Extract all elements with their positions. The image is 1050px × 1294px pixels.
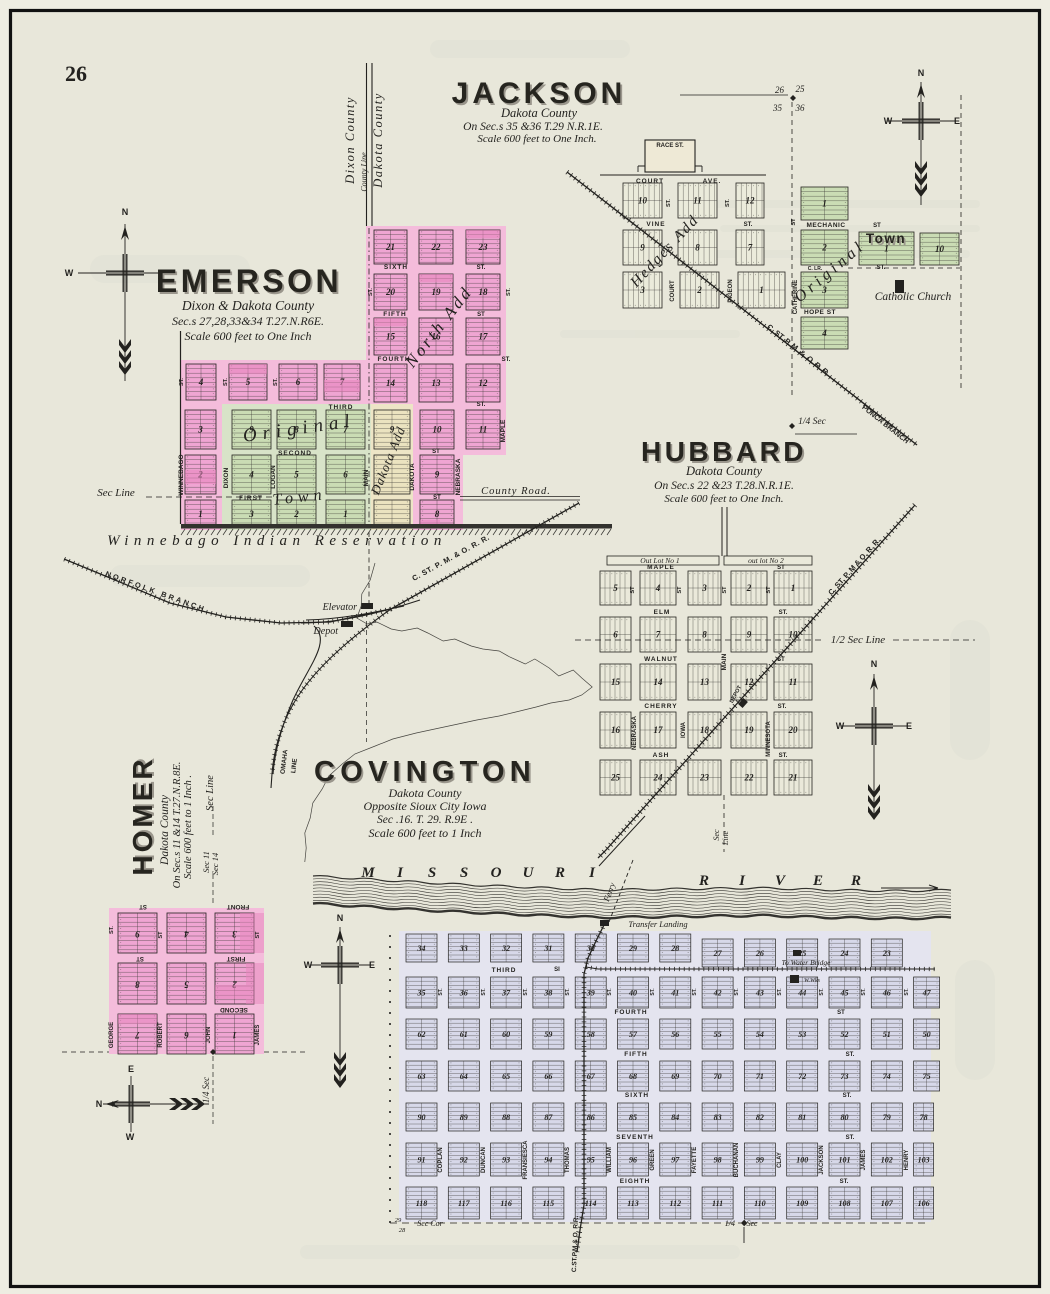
svg-text:45: 45 xyxy=(840,989,849,998)
svg-text:On Sec.s 35 &36 T.29 N.R.1E.: On Sec.s 35 &36 T.29 N.R.1E. xyxy=(463,121,603,133)
svg-text:35: 35 xyxy=(772,103,783,113)
svg-text:2: 2 xyxy=(293,509,299,519)
svg-text:FRANSIESCA: FRANSIESCA xyxy=(523,1140,529,1180)
svg-text:W: W xyxy=(65,268,74,278)
svg-text:14: 14 xyxy=(386,378,396,388)
svg-text:SECOND: SECOND xyxy=(278,450,312,457)
svg-text:8: 8 xyxy=(435,509,440,519)
svg-text:71: 71 xyxy=(756,1072,764,1081)
svg-text:ST: ST xyxy=(791,218,797,226)
svg-text:111: 111 xyxy=(712,1199,723,1208)
svg-text:108: 108 xyxy=(839,1199,851,1208)
svg-text:ST: ST xyxy=(630,586,636,594)
svg-text:6: 6 xyxy=(296,377,301,387)
svg-text:112: 112 xyxy=(670,1199,682,1208)
svg-text:SI: SI xyxy=(554,967,560,973)
svg-text:FIFTH: FIFTH xyxy=(624,1051,647,1058)
svg-text:ST.: ST. xyxy=(666,199,672,207)
svg-text:1: 1 xyxy=(343,509,348,519)
svg-text:ROBERT: ROBERT xyxy=(158,1022,164,1048)
svg-text:70: 70 xyxy=(714,1072,722,1081)
svg-text:5: 5 xyxy=(613,583,618,593)
svg-text:Dixon & Dakota County: Dixon & Dakota County xyxy=(181,298,314,313)
svg-text:86: 86 xyxy=(587,1113,595,1122)
svg-text:26: 26 xyxy=(755,949,764,958)
svg-text:ST: ST xyxy=(255,931,261,939)
svg-text:W: W xyxy=(304,960,313,970)
svg-text:N: N xyxy=(337,913,344,923)
svg-text:27: 27 xyxy=(713,949,723,958)
svg-text:Catholic Church: Catholic Church xyxy=(875,291,952,303)
svg-text:13: 13 xyxy=(432,378,442,388)
svg-text:39: 39 xyxy=(586,989,595,998)
svg-text:MAPLE: MAPLE xyxy=(647,564,675,571)
svg-text:32: 32 xyxy=(501,944,510,953)
svg-text:63: 63 xyxy=(418,1072,426,1081)
svg-text:101: 101 xyxy=(839,1156,851,1165)
svg-text:28: 28 xyxy=(670,944,679,953)
svg-text:1: 1 xyxy=(759,285,764,295)
svg-text:91: 91 xyxy=(418,1156,426,1165)
svg-text:60: 60 xyxy=(502,1030,510,1039)
svg-text:HOMER: HOMER xyxy=(127,756,158,875)
svg-text:ST: ST xyxy=(722,586,728,594)
svg-text:97: 97 xyxy=(671,1156,680,1165)
svg-text:ST.: ST. xyxy=(846,1135,855,1141)
svg-text:102: 102 xyxy=(881,1156,893,1165)
svg-text:Sec Cor: Sec Cor xyxy=(417,1219,443,1228)
svg-text:ST.: ST. xyxy=(734,988,740,996)
svg-text:99: 99 xyxy=(756,1156,764,1165)
svg-text:ST.: ST. xyxy=(692,988,698,996)
svg-text:Line: Line xyxy=(721,830,730,846)
svg-text:N: N xyxy=(96,1099,103,1109)
svg-text:ST.: ST. xyxy=(223,378,229,386)
svg-text:Sec 14: Sec 14 xyxy=(210,852,220,875)
svg-text:12: 12 xyxy=(479,378,489,388)
svg-text:ST.: ST. xyxy=(904,988,910,996)
svg-text:County Road.: County Road. xyxy=(481,486,551,497)
svg-text:1: 1 xyxy=(822,199,827,209)
svg-text:SIXTH: SIXTH xyxy=(625,1092,649,1099)
svg-text:MECHANIC: MECHANIC xyxy=(806,222,845,229)
svg-text:WINNEBAGO: WINNEBAGO xyxy=(178,454,185,495)
svg-text:ST.: ST. xyxy=(565,988,571,996)
svg-text:5: 5 xyxy=(184,980,189,990)
svg-text:COVINGTON: COVINGTON xyxy=(314,756,536,788)
svg-text:116: 116 xyxy=(500,1199,512,1208)
svg-text:JAMES: JAMES xyxy=(255,1025,261,1046)
svg-text:On Sec.s 22 &23 T.28.N.R.1E.: On Sec.s 22 &23 T.28.N.R.1E. xyxy=(654,480,794,492)
svg-text:HUBBARD: HUBBARD xyxy=(641,436,807,467)
svg-text:9: 9 xyxy=(435,470,440,480)
svg-text:106: 106 xyxy=(918,1199,930,1208)
svg-text:ST.: ST. xyxy=(607,988,613,996)
svg-text:ST.: ST. xyxy=(481,988,487,996)
svg-text:WALNUT: WALNUT xyxy=(644,656,678,663)
svg-text:21: 21 xyxy=(788,773,798,783)
svg-text:51: 51 xyxy=(883,1030,891,1039)
svg-text:ST.: ST. xyxy=(877,265,886,271)
svg-text:4: 4 xyxy=(821,328,827,338)
svg-text:23: 23 xyxy=(478,242,489,252)
svg-text:118: 118 xyxy=(416,1199,428,1208)
svg-text:4: 4 xyxy=(184,929,190,939)
svg-text:84: 84 xyxy=(671,1113,679,1122)
svg-text:FAYETTE: FAYETTE xyxy=(692,1147,698,1173)
svg-text:8: 8 xyxy=(702,630,707,640)
svg-text:56: 56 xyxy=(671,1030,679,1039)
svg-text:Dakota County: Dakota County xyxy=(685,464,762,478)
svg-text:Sec.s 27,28,33&34 T.27.N.R6E.: Sec.s 27,28,33&34 T.27.N.R6E. xyxy=(172,314,324,328)
svg-text:GREEN: GREEN xyxy=(650,1149,656,1170)
svg-text:ST.: ST. xyxy=(778,704,787,710)
svg-text:34: 34 xyxy=(417,944,426,953)
svg-text:ST: ST xyxy=(136,955,144,961)
svg-text:24: 24 xyxy=(653,773,664,783)
svg-text:2: 2 xyxy=(821,243,827,253)
svg-text:out lot No 2: out lot No 2 xyxy=(748,556,784,565)
svg-text:23: 23 xyxy=(882,949,891,958)
svg-text:96: 96 xyxy=(629,1156,637,1165)
svg-text:SECOND: SECOND xyxy=(220,1006,248,1013)
svg-text:W.Wks: W.Wks xyxy=(804,978,821,984)
svg-text:MINNESOTA: MINNESOTA xyxy=(766,721,772,757)
svg-text:MAPLE: MAPLE xyxy=(500,419,507,442)
svg-text:Sec Line: Sec Line xyxy=(205,775,216,811)
svg-text:ST.: ST. xyxy=(779,610,788,616)
svg-text:WILLIAM: WILLIAM xyxy=(607,1147,613,1173)
svg-text:On Sec.s 11 &14 T.27.N.R.8E.: On Sec.s 11 &14 T.27.N.R.8E. xyxy=(172,762,183,889)
svg-text:SEVENTH: SEVENTH xyxy=(616,1134,654,1141)
svg-text:Scale 600 feet to One Inch: Scale 600 feet to One Inch xyxy=(185,329,312,343)
svg-text:52: 52 xyxy=(841,1030,849,1039)
svg-text:COURT: COURT xyxy=(670,280,676,302)
svg-text:36: 36 xyxy=(795,103,806,113)
svg-text:9: 9 xyxy=(640,243,645,253)
svg-text:ST.: ST. xyxy=(477,265,486,271)
svg-text:44: 44 xyxy=(797,989,806,998)
svg-text:55: 55 xyxy=(714,1030,722,1039)
svg-text:38: 38 xyxy=(543,989,552,998)
svg-text:115: 115 xyxy=(543,1199,555,1208)
svg-text:DIXON: DIXON xyxy=(223,467,230,488)
svg-text:24: 24 xyxy=(840,949,849,958)
svg-text:90: 90 xyxy=(418,1113,426,1122)
svg-text:FRONT: FRONT xyxy=(227,903,249,910)
svg-text:ST: ST xyxy=(158,931,164,939)
svg-text:W: W xyxy=(126,1132,135,1142)
svg-text:5: 5 xyxy=(246,377,251,387)
svg-text:ST.: ST. xyxy=(477,402,486,408)
svg-text:R: R xyxy=(554,865,565,881)
svg-text:ST: ST xyxy=(677,586,683,594)
svg-text:Sec: Sec xyxy=(746,1219,758,1228)
svg-text:72: 72 xyxy=(798,1072,806,1081)
svg-text:58: 58 xyxy=(587,1030,595,1039)
svg-text:73: 73 xyxy=(841,1072,849,1081)
svg-text:21: 21 xyxy=(385,242,395,252)
svg-text:8: 8 xyxy=(135,980,140,990)
svg-text:4: 4 xyxy=(248,470,254,480)
svg-text:ST.: ST. xyxy=(109,926,115,934)
svg-text:7: 7 xyxy=(748,243,753,253)
svg-text:16: 16 xyxy=(611,725,621,735)
svg-text:FIRST: FIRST xyxy=(227,955,246,962)
svg-text:82: 82 xyxy=(756,1113,764,1122)
svg-text:ST.: ST. xyxy=(744,222,753,228)
svg-text:4: 4 xyxy=(198,377,204,387)
svg-text:N: N xyxy=(871,659,878,669)
svg-text:75: 75 xyxy=(923,1072,931,1081)
svg-text:E: E xyxy=(369,960,375,970)
svg-text:VINE: VINE xyxy=(646,221,665,228)
svg-text:FIRST: FIRST xyxy=(239,495,263,502)
svg-text:40: 40 xyxy=(628,989,637,998)
svg-text:Sec: Sec xyxy=(712,829,721,841)
svg-text:94: 94 xyxy=(544,1156,552,1165)
svg-text:43: 43 xyxy=(755,989,764,998)
svg-text:Scale 600 feet to One Inch.: Scale 600 feet to One Inch. xyxy=(477,133,596,145)
svg-text:Scale 600 feet to One Inch.: Scale 600 feet to One Inch. xyxy=(664,493,783,505)
svg-text:29: 29 xyxy=(395,1217,402,1224)
svg-text:ST: ST xyxy=(139,903,147,909)
svg-text:62: 62 xyxy=(418,1030,426,1039)
svg-text:JOHN: JOHN xyxy=(206,1027,212,1044)
svg-text:N: N xyxy=(122,207,129,217)
svg-text:6: 6 xyxy=(613,630,618,640)
svg-text:57: 57 xyxy=(629,1030,638,1039)
svg-text:3: 3 xyxy=(701,583,707,593)
svg-text:JAMES: JAMES xyxy=(861,1150,867,1171)
svg-text:1: 1 xyxy=(198,509,203,519)
svg-text:ST.: ST. xyxy=(725,199,731,207)
svg-text:42: 42 xyxy=(713,989,722,998)
svg-text:92: 92 xyxy=(460,1156,468,1165)
svg-text:ST.: ST. xyxy=(777,988,783,996)
svg-text:SIXTH: SIXTH xyxy=(384,264,408,271)
svg-text:Transfer Landing: Transfer Landing xyxy=(628,919,687,929)
svg-text:26: 26 xyxy=(65,61,87,86)
svg-text:18: 18 xyxy=(700,725,710,735)
svg-text:110: 110 xyxy=(754,1199,766,1208)
svg-text:DUNCAN: DUNCAN xyxy=(481,1147,487,1173)
svg-text:FOURTH: FOURTH xyxy=(614,1009,647,1016)
svg-text:69: 69 xyxy=(671,1072,679,1081)
svg-text:W: W xyxy=(836,721,845,731)
svg-text:88: 88 xyxy=(502,1113,510,1122)
svg-text:Depot: Depot xyxy=(313,626,339,637)
svg-text:2: 2 xyxy=(696,285,702,295)
svg-text:County Line: County Line xyxy=(360,152,369,192)
svg-text:3: 3 xyxy=(232,929,238,939)
svg-text:JACKSON: JACKSON xyxy=(819,1145,825,1174)
svg-text:CHERRY: CHERRY xyxy=(644,703,677,710)
svg-text:HENRY: HENRY xyxy=(904,1150,910,1171)
svg-text:HOPE ST: HOPE ST xyxy=(804,309,836,316)
svg-text:MAIN: MAIN xyxy=(721,653,728,670)
svg-text:6: 6 xyxy=(184,1030,189,1040)
svg-text:107: 107 xyxy=(881,1199,894,1208)
svg-text:7: 7 xyxy=(656,630,661,640)
svg-text:Dakota County: Dakota County xyxy=(159,794,171,866)
svg-text:47: 47 xyxy=(922,989,932,998)
svg-text:ST.: ST. xyxy=(523,988,529,996)
svg-text:Opposite Sioux City Iowa: Opposite Sioux City Iowa xyxy=(364,799,487,813)
svg-text:46: 46 xyxy=(882,989,891,998)
svg-text:R: R xyxy=(850,873,861,889)
svg-text:Dixon County: Dixon County xyxy=(343,96,357,185)
svg-text:78: 78 xyxy=(920,1113,928,1122)
svg-text:ST.: ST. xyxy=(502,357,511,363)
svg-text:79: 79 xyxy=(883,1113,891,1122)
svg-text:20: 20 xyxy=(788,725,799,735)
svg-text:9: 9 xyxy=(747,630,752,640)
svg-text:ST.: ST. xyxy=(506,288,512,296)
svg-text:10: 10 xyxy=(935,244,945,254)
svg-text:1/2 Sec Line: 1/2 Sec Line xyxy=(831,634,885,646)
svg-text:ST.: ST. xyxy=(840,1179,849,1185)
svg-text:ST: ST xyxy=(873,223,881,229)
svg-text:13: 13 xyxy=(700,677,710,687)
svg-text:103: 103 xyxy=(918,1156,930,1165)
svg-text:26: 26 xyxy=(775,85,785,95)
svg-text:Dakota County: Dakota County xyxy=(500,106,577,120)
svg-text:109: 109 xyxy=(796,1199,808,1208)
svg-text:87: 87 xyxy=(544,1113,553,1122)
svg-text:3: 3 xyxy=(248,509,254,519)
svg-text:22: 22 xyxy=(431,242,442,252)
svg-text:Dakota County: Dakota County xyxy=(388,786,463,800)
svg-text:36: 36 xyxy=(459,989,468,998)
svg-text:93: 93 xyxy=(502,1156,510,1165)
svg-text:19: 19 xyxy=(745,725,755,735)
svg-text:1/4: 1/4 xyxy=(725,1219,735,1228)
svg-text:19: 19 xyxy=(432,287,442,297)
svg-text:29: 29 xyxy=(628,944,637,953)
svg-text:I: I xyxy=(396,865,404,881)
svg-text:R: R xyxy=(698,873,709,889)
svg-text:95: 95 xyxy=(587,1156,595,1165)
svg-text:ST: ST xyxy=(766,586,772,594)
svg-text:Elevator: Elevator xyxy=(322,602,358,613)
svg-text:ST.: ST. xyxy=(650,988,656,996)
svg-text:65: 65 xyxy=(502,1072,510,1081)
svg-text:80: 80 xyxy=(841,1113,849,1122)
svg-text:Winnebago Indian Reservati: Winnebago Indian Reservation xyxy=(107,533,447,549)
svg-text:85: 85 xyxy=(629,1113,637,1122)
svg-text:ELM: ELM xyxy=(654,609,671,616)
svg-text:100: 100 xyxy=(796,1156,808,1165)
svg-text:W: W xyxy=(884,116,893,126)
svg-text:ASH: ASH xyxy=(653,752,670,759)
svg-text:ST.: ST. xyxy=(779,753,788,759)
svg-text:Sec .16. T. 29. R.9E .: Sec .16. T. 29. R.9E . xyxy=(377,814,473,826)
svg-text:15: 15 xyxy=(386,332,396,342)
svg-text:ST.: ST. xyxy=(438,988,444,996)
svg-text:Sec Line: Sec Line xyxy=(97,487,135,499)
svg-text:28: 28 xyxy=(399,1227,406,1234)
svg-text:Scale 600 feet to 1 Inch .: Scale 600 feet to 1 Inch . xyxy=(183,775,194,879)
svg-text:COPLAN: COPLAN xyxy=(438,1147,444,1172)
svg-text:ST.: ST. xyxy=(861,988,867,996)
svg-text:17: 17 xyxy=(479,332,489,342)
svg-text:89: 89 xyxy=(460,1113,468,1122)
svg-text:50: 50 xyxy=(923,1030,931,1039)
svg-text:IOWA: IOWA xyxy=(681,721,687,738)
svg-text:8: 8 xyxy=(695,243,700,253)
svg-text:S: S xyxy=(460,865,468,881)
svg-text:S: S xyxy=(428,865,436,881)
svg-text:ST: ST xyxy=(432,449,440,455)
svg-text:11: 11 xyxy=(479,425,488,435)
svg-text:74: 74 xyxy=(883,1072,891,1081)
svg-text:E: E xyxy=(954,116,960,126)
svg-text:68: 68 xyxy=(629,1072,637,1081)
svg-text:Scale 600 feet to 1 Inch: Scale 600 feet to 1 Inch xyxy=(369,826,482,840)
svg-text:E: E xyxy=(812,873,823,889)
svg-text:3: 3 xyxy=(197,425,203,435)
svg-text:117: 117 xyxy=(458,1199,471,1208)
svg-text:113: 113 xyxy=(627,1199,639,1208)
svg-text:ST: ST xyxy=(477,312,485,318)
svg-text:THOMAS: THOMAS xyxy=(565,1147,571,1173)
svg-text:N: N xyxy=(918,68,925,78)
svg-text:53: 53 xyxy=(798,1030,806,1039)
svg-text:1/4 Sec: 1/4 Sec xyxy=(798,417,826,427)
svg-text:61: 61 xyxy=(460,1030,468,1039)
svg-text:18: 18 xyxy=(479,287,489,297)
svg-text:EIGHTH: EIGHTH xyxy=(620,1178,651,1185)
svg-text:37: 37 xyxy=(501,989,511,998)
svg-text:25: 25 xyxy=(610,773,621,783)
svg-text:I: I xyxy=(738,873,746,889)
svg-text:To Water Bridge: To Water Bridge xyxy=(781,958,831,967)
svg-text:ST.: ST. xyxy=(843,1093,852,1099)
svg-text:10: 10 xyxy=(638,196,648,206)
svg-text:RACE ST.: RACE ST. xyxy=(656,143,684,149)
svg-text:66: 66 xyxy=(544,1072,552,1081)
svg-text:THIRD: THIRD xyxy=(492,967,517,974)
svg-text:17: 17 xyxy=(654,725,664,735)
svg-text:9: 9 xyxy=(135,929,140,939)
svg-text:12: 12 xyxy=(746,196,756,206)
svg-text:Dakota County: Dakota County xyxy=(371,92,385,189)
svg-text:LOGAN: LOGAN xyxy=(270,465,277,489)
svg-text:EMERSON: EMERSON xyxy=(156,263,342,299)
svg-text:ST.: ST. xyxy=(846,1052,855,1058)
svg-text:5: 5 xyxy=(294,470,299,480)
svg-text:67: 67 xyxy=(587,1072,596,1081)
svg-text:O: O xyxy=(491,865,502,881)
svg-text:GEORGE: GEORGE xyxy=(109,1022,115,1048)
svg-text:FIFTH: FIFTH xyxy=(383,311,406,318)
svg-text:14: 14 xyxy=(654,677,664,687)
svg-text:15: 15 xyxy=(611,677,621,687)
svg-text:ST.: ST. xyxy=(273,378,279,386)
svg-text:114: 114 xyxy=(585,1199,597,1208)
svg-text:59: 59 xyxy=(544,1030,552,1039)
svg-text:ST: ST xyxy=(837,1010,845,1016)
svg-text:11: 11 xyxy=(693,196,702,206)
svg-text:I: I xyxy=(588,865,596,881)
svg-text:6: 6 xyxy=(343,470,348,480)
svg-text:U: U xyxy=(523,865,535,881)
svg-text:Town: Town xyxy=(866,231,906,246)
svg-text:64: 64 xyxy=(460,1072,468,1081)
svg-text:BUCHANAN: BUCHANAN xyxy=(734,1143,740,1178)
svg-text:CLAY: CLAY xyxy=(777,1152,783,1168)
